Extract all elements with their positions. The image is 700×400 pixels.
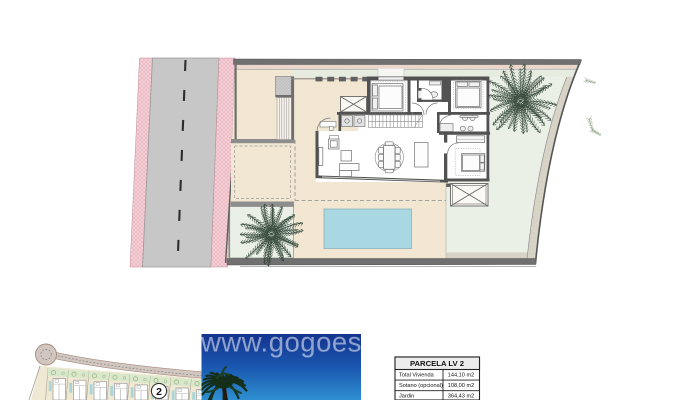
svg-text:144,10 m2: 144,10 m2	[448, 373, 474, 379]
svg-text:364,43 m2: 364,43 m2	[448, 394, 474, 400]
svg-text:Sotano (opcional): Sotano (opcional)	[399, 383, 443, 389]
svg-text:PARCELA LV 2: PARCELA LV 2	[410, 359, 464, 368]
svg-text:Jardin: Jardin	[399, 394, 414, 400]
svg-text:108,00 m2: 108,00 m2	[448, 383, 474, 389]
svg-text:2: 2	[156, 386, 162, 398]
svg-text:Total Vivienda: Total Vivienda	[399, 373, 435, 379]
